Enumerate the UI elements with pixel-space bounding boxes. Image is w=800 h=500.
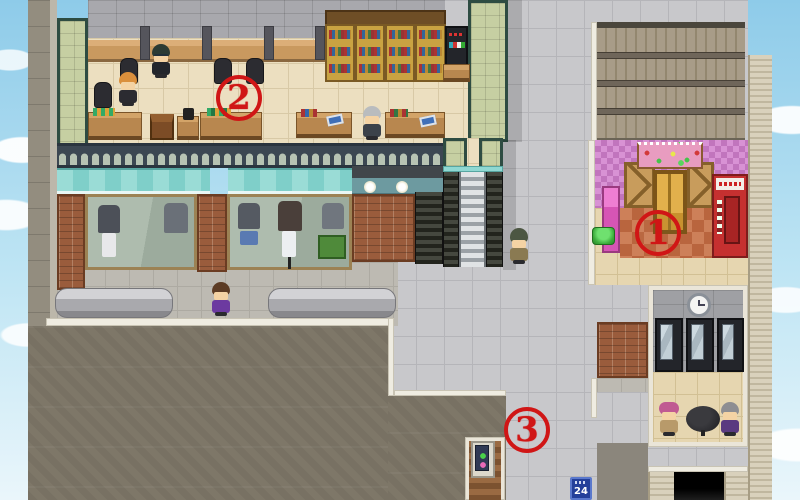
sign-24-text: 24 [572, 486, 590, 497]
drink-bottles [449, 42, 465, 48]
book-row [389, 47, 411, 56]
office-desk-tablet [296, 112, 352, 138]
shop-awning-left [57, 168, 210, 196]
wood-wall-band [597, 108, 745, 115]
map-marker-1: 1 [635, 210, 681, 256]
flower-shop-border [588, 140, 595, 285]
divider-border [591, 378, 597, 418]
sidewalk-curb-vertical [388, 318, 394, 396]
book-row [329, 30, 351, 39]
ceiling-light-icon [396, 181, 408, 193]
npc-face [214, 292, 228, 300]
display-window [85, 194, 197, 270]
npc-face [723, 412, 737, 420]
sign-top-marks [575, 481, 587, 484]
wall-clock [687, 293, 711, 317]
npc-face [154, 54, 168, 62]
wooden-chest[interactable] [150, 114, 174, 140]
bench[interactable] [268, 288, 396, 318]
garage-surround-wall [597, 443, 648, 500]
map-marker-2: 2 [216, 75, 262, 121]
npc-legs [724, 432, 736, 436]
npc-face [662, 412, 676, 420]
marker-3-number: 3 [515, 410, 539, 450]
book-row [329, 47, 351, 56]
shop-soffit [352, 166, 443, 178]
bookshelf [415, 24, 446, 82]
npc-legs [215, 312, 227, 316]
drink-station-lights [449, 33, 464, 36]
street-machine-display [475, 445, 489, 471]
desk-divider [140, 26, 150, 60]
office-chair [94, 82, 112, 108]
mannequin-jacket [164, 203, 188, 233]
mannequin-jacket [238, 203, 260, 229]
marker-2-number: 2 [227, 78, 251, 118]
office-counter [88, 112, 142, 140]
convenience-24-sign: 24 [570, 477, 592, 500]
mannequin-pants-white [282, 231, 296, 257]
book-row [359, 47, 381, 56]
room-vending-machine[interactable] [655, 318, 683, 372]
npc-purple-shirt-pedestrian[interactable] [210, 282, 232, 316]
bookshelf [325, 24, 355, 82]
machine-door [724, 196, 740, 244]
machine-header [716, 178, 744, 190]
office-wall-shadow [508, 0, 522, 142]
garage-pillar [724, 472, 748, 500]
wood-wall-band [597, 80, 745, 87]
ceiling-light-icon [364, 181, 376, 193]
round-table [686, 406, 720, 432]
green-plant-box [592, 227, 615, 245]
tablet[interactable] [419, 114, 437, 127]
machine-glass [660, 324, 673, 360]
npc-face [365, 116, 379, 124]
book-row [389, 30, 411, 39]
npc-helmet-pedestrian[interactable] [508, 228, 530, 262]
npc-legs [366, 136, 378, 140]
room-vending-machine[interactable] [717, 318, 744, 372]
street-vending-machine[interactable] [471, 441, 495, 478]
book-row [359, 30, 381, 39]
escalator-track-right [486, 172, 503, 267]
clock-hand-minute [699, 304, 705, 306]
green-display-box [318, 235, 346, 259]
mannequin-jacket [98, 205, 120, 233]
wood-wall-band [597, 52, 745, 59]
escalator-side-wall [415, 192, 443, 264]
mannequin-suit [278, 201, 302, 231]
road-asphalt [28, 326, 390, 500]
bench[interactable] [55, 288, 173, 318]
machine-glass [722, 324, 734, 360]
right-building-column [748, 55, 772, 500]
npc-purple-suit-elder[interactable] [719, 402, 741, 436]
mannequin-shorts [240, 231, 258, 245]
desk-divider [315, 26, 325, 60]
plaza-curb [394, 390, 506, 396]
counter-bottles [93, 108, 115, 116]
map-marker-3: 3 [504, 407, 550, 453]
npc-pink-hat-woman[interactable] [658, 402, 680, 436]
book-row [389, 64, 411, 73]
shop-awning-right [228, 168, 352, 196]
brick-pillar [57, 194, 85, 290]
red-vending-machine[interactable] [712, 174, 748, 258]
marker-1-number: 1 [646, 213, 670, 253]
mannequin-stand [288, 257, 291, 269]
desk-divider [264, 26, 274, 60]
display-window [227, 194, 352, 270]
escalator-steps[interactable] [459, 172, 486, 267]
npc-office-elder[interactable] [361, 106, 383, 140]
office-desk-tablet [385, 112, 445, 138]
office-front-arch-wall [57, 143, 468, 168]
books-stack [301, 109, 317, 117]
book-row [359, 64, 381, 73]
book-row [419, 47, 442, 56]
npc-office-worker-glasses[interactable] [150, 44, 172, 78]
garage-pillar [648, 472, 674, 500]
brick-divider-wall [597, 322, 648, 378]
machine-slots [717, 200, 722, 234]
game-viewport: 24 1 [0, 0, 800, 500]
office-wall-right [468, 0, 508, 142]
tablet[interactable] [326, 113, 344, 126]
npc-legs [663, 432, 675, 436]
brick-pillar [197, 194, 227, 272]
machine-label-scribble [719, 182, 741, 186]
desk-divider [202, 26, 212, 60]
mannequin-pants [102, 233, 116, 257]
divider-sidewalk [597, 378, 648, 392]
brick-wall-section [352, 194, 415, 262]
sidewalk-curb [46, 318, 394, 326]
npc-legs [122, 102, 134, 106]
npc-face [121, 82, 135, 90]
npc-office-worker-orange-hair[interactable] [117, 72, 139, 106]
book-row [419, 64, 442, 73]
bookshelf [355, 24, 385, 82]
coffee-machine[interactable] [183, 108, 194, 120]
books-stack [390, 109, 408, 117]
escalator-track-left [443, 172, 459, 267]
mannequin-jacket [322, 203, 344, 229]
npc-legs [513, 260, 525, 264]
drink-station-counter [443, 64, 470, 82]
book-row [329, 64, 351, 73]
drink-station[interactable] [445, 26, 468, 66]
garage-opening[interactable] [674, 472, 724, 500]
npc-face [512, 240, 526, 248]
npc-legs [155, 74, 167, 78]
coffee-table [177, 116, 199, 140]
left-outer-wall [28, 0, 57, 326]
bookshelf [385, 24, 415, 82]
room-vending-machine[interactable] [686, 318, 714, 372]
flower-banner [637, 142, 703, 169]
book-row [419, 30, 442, 39]
table-leg [701, 430, 705, 436]
machine-glass [691, 324, 704, 360]
